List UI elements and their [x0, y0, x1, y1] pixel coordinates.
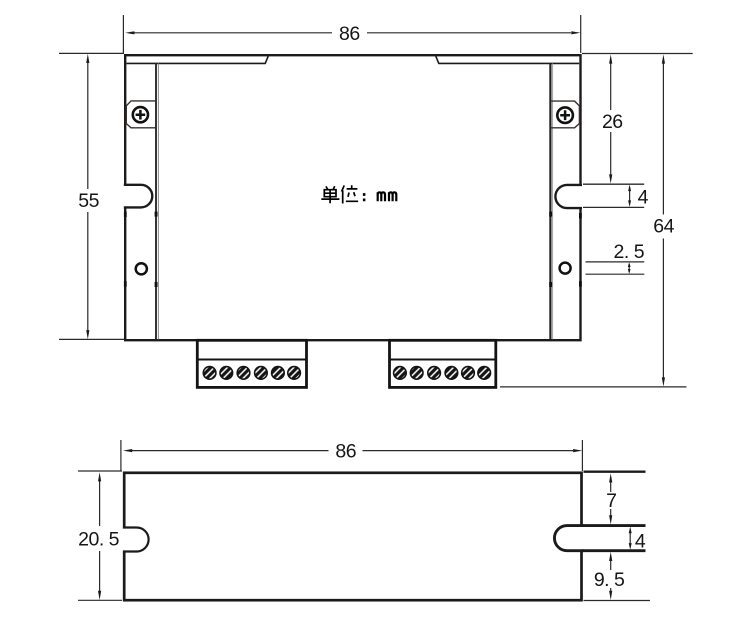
svg-text:86: 86: [335, 441, 356, 463]
svg-text:4: 4: [635, 531, 646, 553]
svg-text:4: 4: [638, 186, 649, 208]
svg-text:9. 5: 9. 5: [594, 569, 625, 591]
svg-text:7: 7: [606, 490, 617, 512]
svg-text:26: 26: [602, 111, 623, 133]
svg-text:86: 86: [339, 23, 360, 45]
svg-text:55: 55: [78, 190, 99, 212]
svg-text:20. 5: 20. 5: [78, 529, 120, 551]
svg-text:64: 64: [653, 216, 674, 238]
svg-text:2. 5: 2. 5: [614, 241, 645, 263]
